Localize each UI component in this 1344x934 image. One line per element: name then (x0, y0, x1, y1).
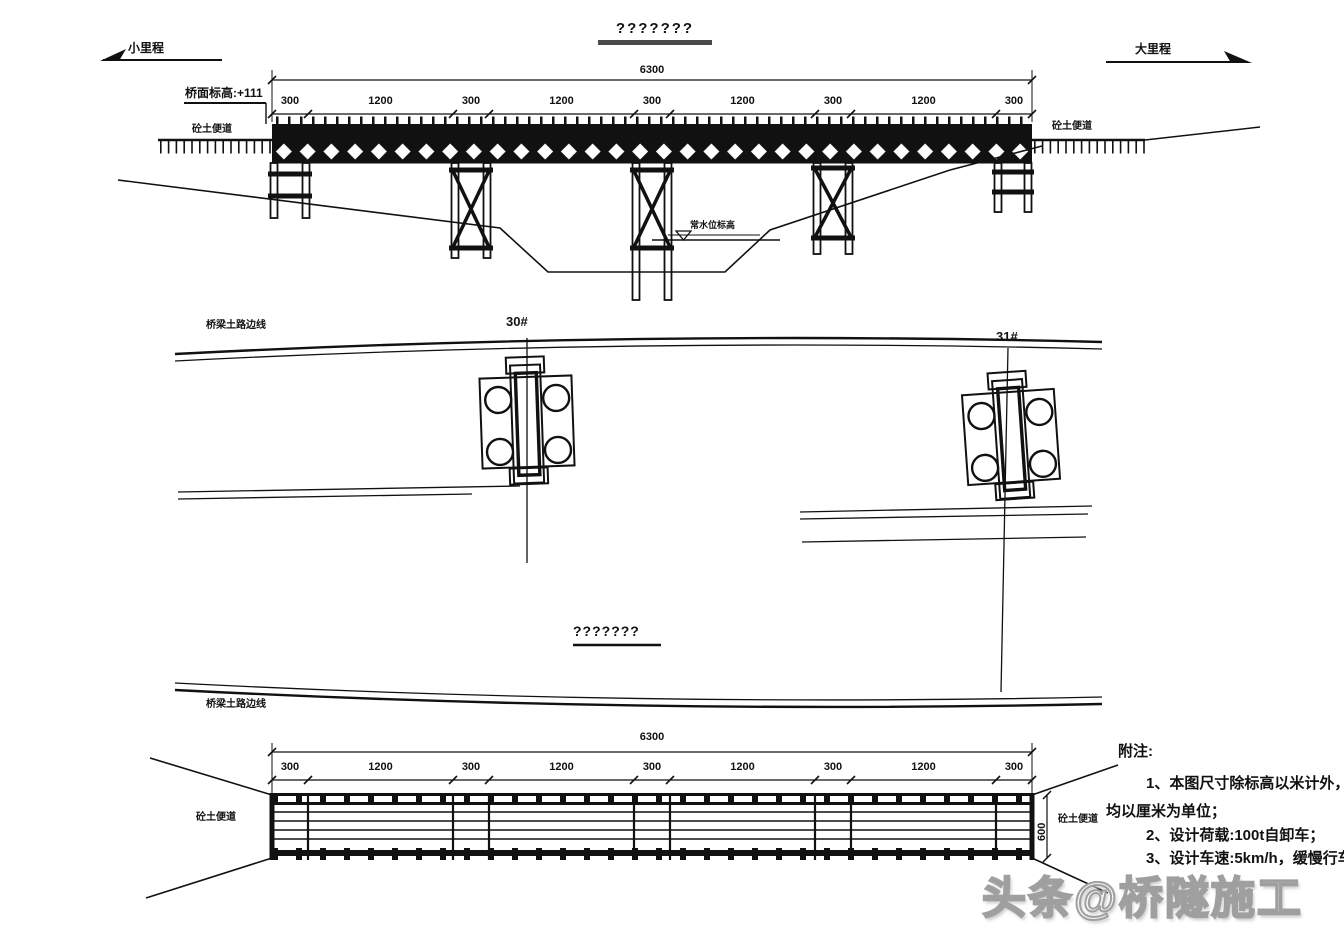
dim-seg: 300 (272, 761, 308, 773)
title-underline (598, 40, 712, 45)
dim-seg: 300 (453, 95, 489, 107)
deckplan-deck (146, 758, 1118, 898)
deckplan-width-dim: 600 (1036, 823, 1048, 841)
dim-seg: 300 (272, 95, 308, 107)
dim-seg: 1200 (851, 761, 996, 773)
dim-seg: 1200 (308, 761, 453, 773)
dim-seg: 300 (815, 761, 851, 773)
dim-seg: 300 (453, 761, 489, 773)
drawing-sheet: ??????? 小里程 大里程 6300 300 1200 300 1200 3… (0, 0, 1344, 934)
dim-seg: 300 (634, 761, 670, 773)
dim-seg: 1200 (489, 761, 634, 773)
left-embankment-label: 砼土便道 (192, 124, 232, 135)
notes-heading: 附注: (1118, 744, 1153, 761)
mileage-label-left: 小里程 (128, 42, 164, 55)
mileage-label-right: 大里程 (1135, 43, 1171, 56)
notes-line-1: 1、本图尺寸除标高以米计外，其余尺寸 (1146, 776, 1344, 793)
direction-arrow-right (1106, 51, 1252, 63)
plan-pier-30 (479, 338, 575, 563)
deckplan-left-label: 砼土便道 (196, 812, 236, 823)
notes-line-3: 2、设计荷载:100t自卸车； (1146, 828, 1324, 845)
watermark-text: 头条@桥隧施工技术 (982, 862, 1344, 934)
deckplan-right-label: 砼土便道 (1058, 814, 1098, 825)
drawing-linework (0, 0, 1344, 934)
right-embankment-label: 砼土便道 (1052, 121, 1092, 132)
dim-seg: 1200 (670, 95, 815, 107)
dim-seg: 300 (815, 95, 851, 107)
dim-seg: 300 (996, 95, 1032, 107)
plan-stream-lines (178, 486, 1092, 542)
pier-30-label: 30# (506, 315, 528, 329)
dim-seg: 1200 (308, 95, 453, 107)
pier-31-label: 31# (996, 330, 1018, 344)
elevation-deck (272, 121, 1032, 164)
plan-pier-31 (961, 348, 1062, 692)
elevation-overall-dim: 6300 (272, 64, 1032, 76)
dim-seg: 1200 (670, 761, 815, 773)
dim-seg: 300 (634, 95, 670, 107)
elevation-bents (268, 163, 1034, 300)
plan-road-edges (175, 338, 1102, 707)
notes-line-2: 均以厘米为单位； (1106, 804, 1226, 821)
drawing-title: ??????? (598, 21, 712, 38)
dim-seg: 1200 (851, 95, 996, 107)
plan-bottom-edge-label: 桥梁土路边线 (206, 699, 266, 710)
water-level-label: 常水位标高 (690, 221, 735, 231)
dim-seg: 1200 (489, 95, 634, 107)
dim-seg: 300 (996, 761, 1032, 773)
plan-center-note: ??????? (573, 624, 640, 639)
plan-top-edge-label: 桥梁土路边线 (206, 320, 266, 331)
deck-elevation-label: 桥面标高:+111 (185, 87, 263, 100)
deckplan-overall-dim: 6300 (272, 731, 1032, 743)
